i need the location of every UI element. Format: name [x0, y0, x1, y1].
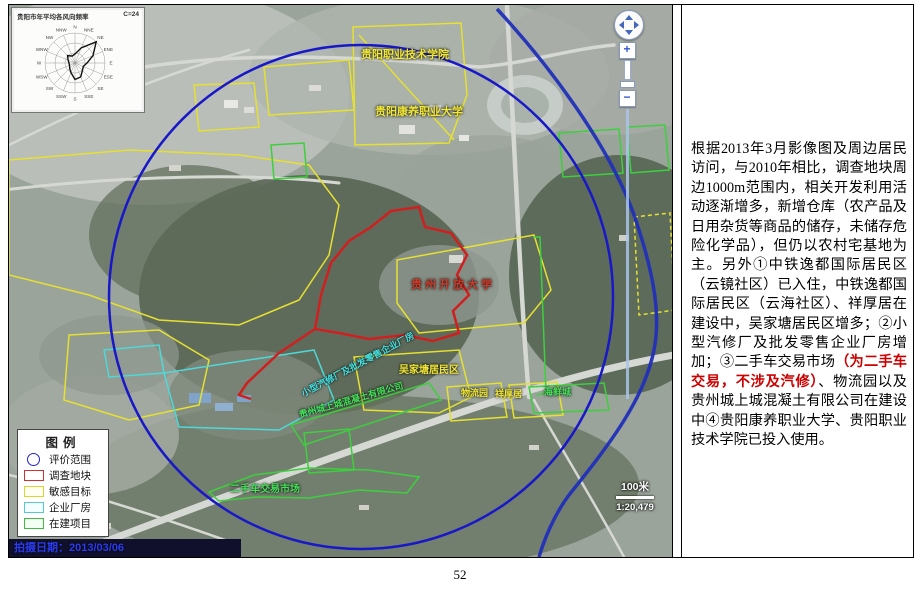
- description-paragraph: 根据2013年3月影像图及周边居民访问，与2010年相比，调查地块周边1000m…: [682, 5, 913, 451]
- pan-down-icon[interactable]: [625, 30, 633, 35]
- legend-item-survey-plot: 调查地块: [18, 467, 108, 483]
- page-number: 52: [0, 567, 920, 583]
- legend-title: 图例: [18, 432, 108, 451]
- windrose-direction-label: SE: [97, 86, 103, 91]
- map-label-seafood-city: 海鲜城: [544, 385, 571, 398]
- windrose-direction-label: SSW: [56, 94, 67, 99]
- windrose-calm-label: C=24: [123, 11, 139, 21]
- windrose-direction-label: SW: [46, 86, 54, 91]
- scale-ratio: 1:20,479: [603, 502, 667, 513]
- under-construction-symbol: [24, 518, 44, 529]
- windrose-direction-label: ESE: [104, 74, 113, 79]
- description-panel: 根据2013年3月影像图及周边居民访问，与2010年相比，调查地块周边1000m…: [681, 5, 913, 557]
- windrose-direction-label: WSW: [36, 74, 48, 79]
- legend-item-evaluation-range: 评价范围: [18, 451, 108, 467]
- map-label-xianghouju: 祥厚居: [495, 387, 522, 400]
- scale-bar: [616, 496, 654, 499]
- map-nav-control: + −: [607, 10, 647, 399]
- pan-right-icon[interactable]: [634, 21, 639, 29]
- map-scale: 100米 1:20,479: [603, 479, 667, 513]
- windrose-direction-label: E: [109, 61, 112, 66]
- windrose-direction-label: WNW: [36, 47, 49, 52]
- enterprise-symbol: [24, 502, 44, 513]
- legend-item-enterprise: 企业厂房: [18, 499, 108, 515]
- pan-left-icon[interactable]: [619, 21, 624, 29]
- pan-control[interactable]: [614, 10, 644, 40]
- windrose-direction-label: NNE: [84, 27, 94, 32]
- zoom-out-button[interactable]: −: [619, 90, 636, 107]
- description-text-black-1: 根据2013年3月影像图及周边居民访问，与2010年相比，调查地块周边1000m…: [691, 141, 907, 370]
- zoom-in-button[interactable]: +: [619, 42, 636, 59]
- legend-item-sensitive-target: 敏感目标: [18, 483, 108, 499]
- map-label-logistics-park: 物流园: [461, 386, 488, 399]
- windrose-direction-label: NE: [97, 35, 103, 40]
- map-label-wujiatang: 吴家塘居民区: [399, 361, 459, 376]
- figure-frame: 贵阳职业技术学院 贵阳康养职业大学 贵州开放大学 小型汽修厂及批发零售企业厂房 …: [8, 4, 914, 558]
- legend-item-under-construction: 在建项目: [18, 515, 108, 531]
- capture-date-bar: 拍摄日期：2013/03/06: [9, 539, 241, 557]
- map-label-open-university: 贵州开放大学: [411, 276, 495, 292]
- pan-up-icon[interactable]: [625, 15, 633, 20]
- map-label-vocational-college: 贵阳职业技术学院: [361, 46, 449, 62]
- map-label-used-car-market: 二手车交易市场: [230, 480, 300, 495]
- survey-plot-symbol: [24, 470, 44, 481]
- satellite-map: 贵阳职业技术学院 贵阳康养职业大学 贵州开放大学 小型汽修厂及批发零售企业厂房 …: [9, 5, 673, 557]
- windrose-inset: 贵阳市年平均各风向频率 C=24 NNNENEENEEESESESSESSSWS…: [11, 7, 145, 113]
- windrose-direction-label: N: [73, 25, 76, 30]
- windrose-direction-label: SSE: [84, 94, 93, 99]
- windrose-direction-label: NNW: [56, 27, 68, 32]
- map-legend: 图例 评价范围 调查地块 敏感目标 企业厂房: [17, 429, 109, 537]
- windrose-direction-label: ENE: [104, 47, 113, 52]
- windrose-direction-label: W: [37, 61, 42, 66]
- scale-distance: 100米: [603, 479, 667, 494]
- zoom-slider-track: [626, 109, 629, 399]
- evaluation-range-symbol: [27, 453, 40, 466]
- windrose-title: 贵阳市年平均各风向频率: [17, 11, 89, 21]
- windrose-direction-label: S: [73, 97, 76, 102]
- zoom-slider-handle[interactable]: [620, 81, 635, 88]
- map-label-kangyang-university: 贵阳康养职业大学: [375, 103, 463, 119]
- zoom-slider-rail[interactable]: [624, 60, 631, 80]
- document-page: 贵阳职业技术学院 贵阳康养职业大学 贵州开放大学 小型汽修厂及批发零售企业厂房 …: [0, 0, 920, 593]
- windrose-chart: NNNENEENEEESESESSESSSWSWWSWWWNWNWNNW: [12, 21, 138, 107]
- windrose-direction-label: NW: [46, 35, 54, 40]
- sensitive-target-symbol: [24, 486, 44, 497]
